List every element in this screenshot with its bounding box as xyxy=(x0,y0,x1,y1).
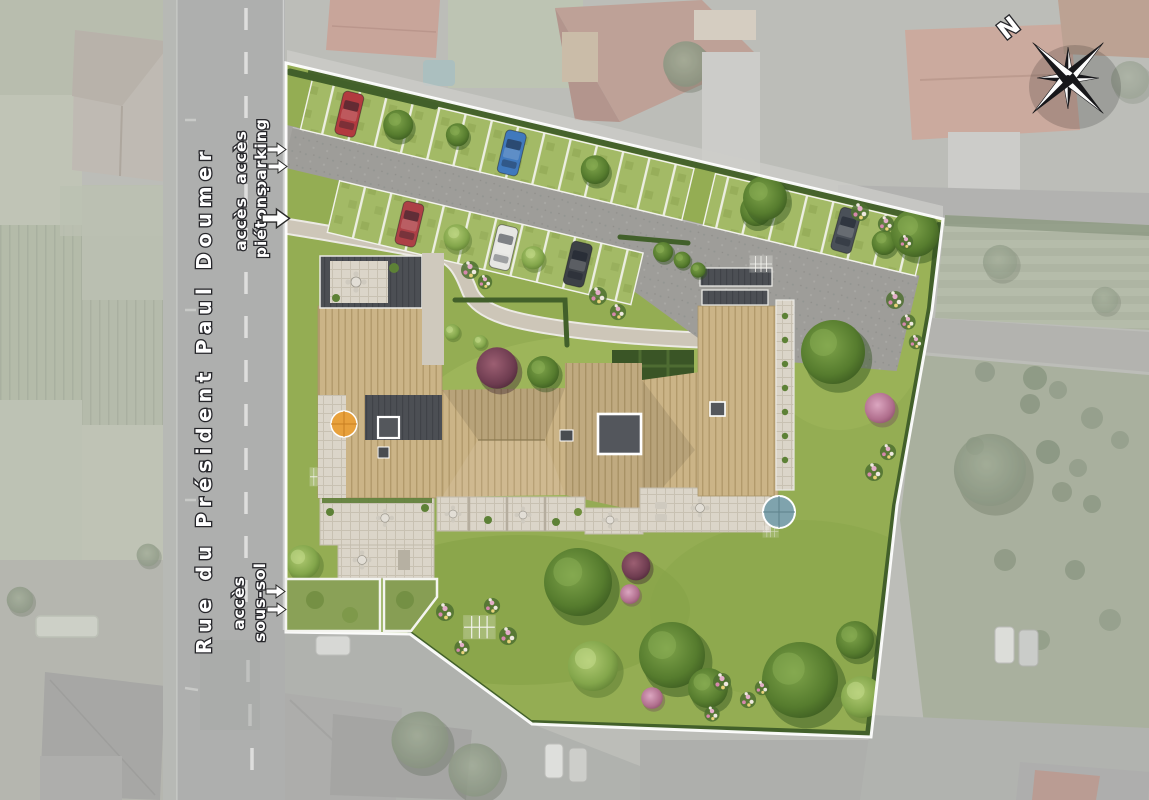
acces-pietons-line1: accès xyxy=(232,197,250,251)
outlined-plots xyxy=(286,579,437,631)
roof-grid-vent xyxy=(750,256,772,272)
dark-roof xyxy=(702,290,768,305)
street-label: Rue du Président Paul Doumer xyxy=(192,146,216,654)
acces-parking-line2: parking xyxy=(252,118,270,192)
acces-sous-sol-line1: accès xyxy=(230,576,248,630)
acces-parking-line1: accès xyxy=(232,130,250,184)
roof-elevator-shaft xyxy=(598,414,641,454)
teal-parasol xyxy=(763,496,795,528)
annotation-street: Rue du Président Paul Doumer xyxy=(192,146,216,654)
site-plan-svg: Rue du Président Paul Doumer accès parki… xyxy=(0,0,1149,800)
orange-parasol xyxy=(331,411,357,437)
roof-skylight xyxy=(378,417,399,438)
garden-grid xyxy=(464,616,495,638)
acces-sous-sol-line2: sous-sol xyxy=(251,562,269,642)
wood-roof xyxy=(698,306,778,496)
site-plan-image: Rue du Président Paul Doumer accès parki… xyxy=(0,0,1149,800)
dark-roof xyxy=(365,395,442,440)
